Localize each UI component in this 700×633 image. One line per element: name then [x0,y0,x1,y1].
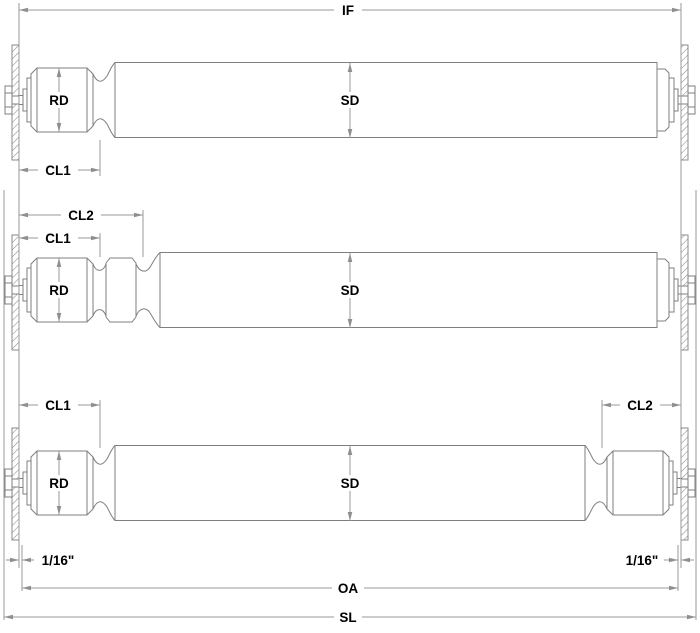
roller-dimension-diagram: IF SD RD CL1 CL2 CL1 SD RD CL1 CL2 SD RD… [0,0,700,633]
label-cl2-bottom: CL2 [627,398,653,413]
label-sd-top: SD [341,93,360,108]
label-rd-bottom: RD [49,476,69,491]
label-cl1-top: CL1 [45,163,71,178]
label-sixteenth-left: 1/16" [42,553,75,568]
label-cl1-bottom: CL1 [45,398,71,413]
right-end-assembly [657,259,695,321]
label-rd-middle: RD [49,283,69,298]
right-end-assembly [657,69,695,131]
groove [93,63,115,138]
diagram-canvas: IF SD RD CL1 CL2 CL1 SD RD CL1 CL2 SD RD… [0,0,700,633]
roller-body [160,253,657,328]
right-groove [585,446,607,521]
label-oa: OA [338,581,359,596]
label-sd-middle: SD [341,283,360,298]
roller-body [115,63,657,138]
label-cl1-middle: CL1 [45,231,71,246]
second-collar [106,253,160,328]
label-rd-top: RD [49,93,69,108]
label-if: IF [342,3,354,18]
groove-1 [93,264,106,316]
label-sl: SL [339,610,356,625]
left-groove [93,446,115,521]
right-end-mirrored [585,446,695,521]
label-sd-bottom: SD [341,476,360,491]
label-sixteenth-right: 1/16" [626,553,659,568]
label-cl2-middle: CL2 [68,208,94,223]
